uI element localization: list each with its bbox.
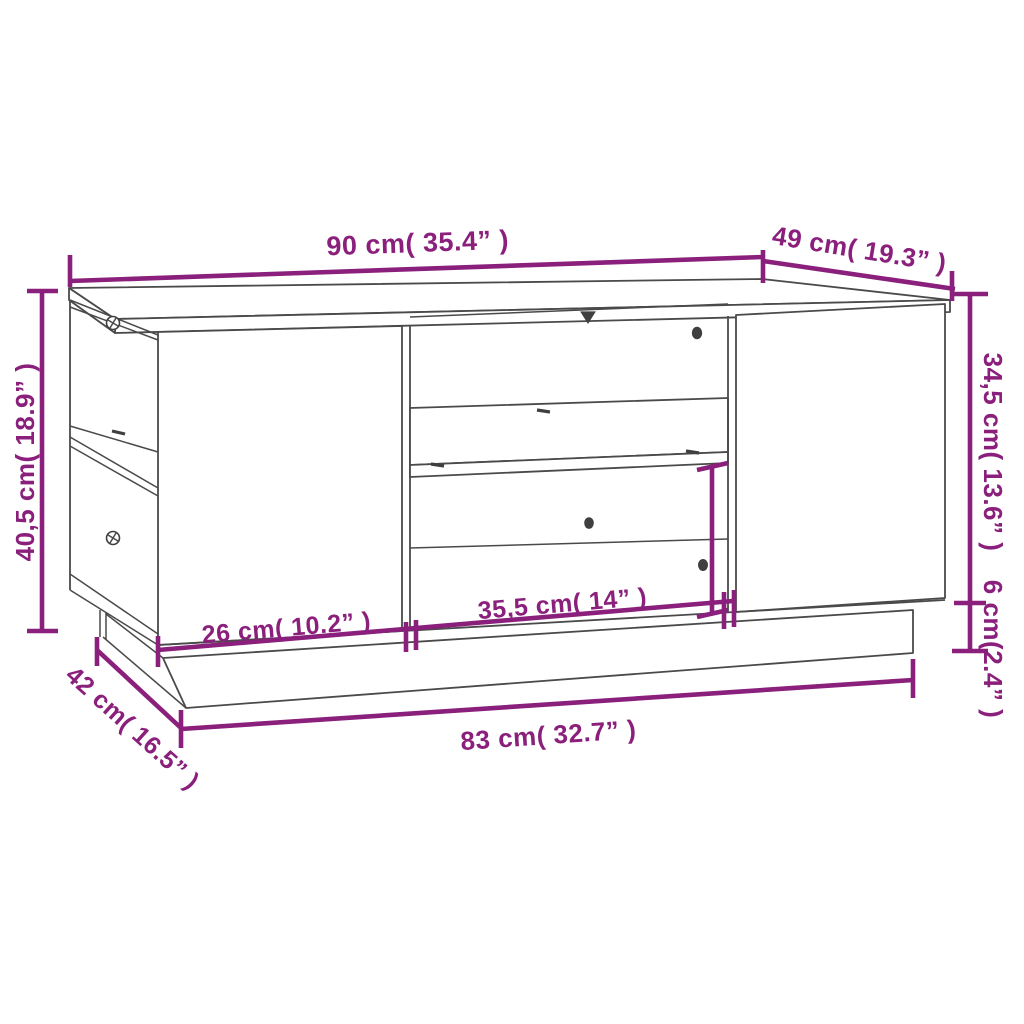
dowel-mark xyxy=(686,451,699,453)
dim-label-total-height: 40,5 cm( 18.9” ) xyxy=(10,363,40,562)
screw-icon xyxy=(107,317,120,330)
dim-label-base-height: 6 cm(2.4” ) xyxy=(978,580,1008,718)
middle-compartment-floor-back-edge xyxy=(410,539,728,548)
dim-line-top-width xyxy=(70,257,763,281)
left-side-opening xyxy=(70,300,158,645)
screw-mark xyxy=(693,328,700,337)
side-shelf-front-bottom-edge xyxy=(70,446,158,496)
side-bottom-top-edge xyxy=(70,574,158,634)
dim-label-top-width: 90 cm( 35.4” ) xyxy=(326,225,510,262)
right-door-panel xyxy=(736,304,945,612)
side-shelf-front-top-edge xyxy=(70,437,158,488)
dowel-mark xyxy=(537,410,550,412)
coffee-table-dimension-diagram: 90 cm( 35.4” ) 49 cm( 19.3” ) 40,5 cm( 1… xyxy=(0,0,1024,1024)
dim-label-top-depth: 49 cm( 19.3” ) xyxy=(770,220,949,278)
dim-label-body-height: 34,5 cm( 13.6” ) xyxy=(978,353,1008,552)
dimension-diagram-page: 90 cm( 35.4” ) 49 cm( 19.3” ) 40,5 cm( 1… xyxy=(0,0,1024,1024)
dowel-mark xyxy=(431,464,444,466)
screw-icon xyxy=(107,532,120,545)
dim-label-base-width: 83 cm( 32.7” ) xyxy=(459,714,637,756)
left-door-panel xyxy=(158,326,402,645)
dowel-mark xyxy=(112,431,125,434)
screw-mark xyxy=(586,519,592,527)
screw-mark xyxy=(700,561,707,570)
side-bottom-bottom-edge xyxy=(70,590,158,645)
plinth-side-top-edge xyxy=(106,614,163,658)
